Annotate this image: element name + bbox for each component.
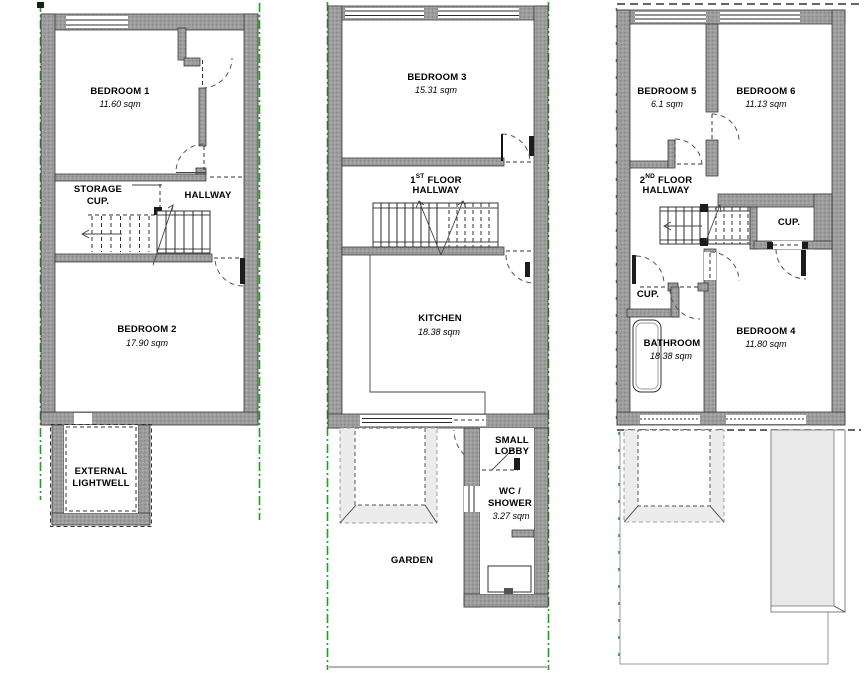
window [66, 16, 128, 28]
room-area-wc-shower: 3.27 sqm [492, 512, 529, 522]
plan-lower-ground [37, 2, 260, 527]
hall-ordinal-suffix: ND [645, 173, 655, 180]
room-label-second-floor-hallway-line2: HALLWAY [643, 186, 690, 196]
room-label-wc-shower-line2: SHOWER [488, 499, 532, 509]
below-floor-outline [617, 430, 861, 664]
room-label-small-lobby-line2: LOBBY [495, 447, 529, 457]
room-label-small-lobby-line1: SMALL [495, 436, 529, 446]
room-area-bedroom-5: 6.1 sqm [651, 100, 683, 110]
stairs [660, 204, 750, 246]
room-label-bedroom-2: BEDROOM 2 [117, 325, 176, 335]
room-label-storage-cup-line2: CUP. [87, 197, 109, 207]
room-label-storage-cup-line1: STORAGE [74, 185, 122, 195]
floor-plan-page: BEDROOM 1 11.60 sqm STORAGE CUP. HALLWAY… [0, 0, 864, 673]
room-area-bedroom-1: 11.60 sqm [99, 100, 140, 110]
room-label-wc-shower-line1: WC / [499, 487, 521, 497]
room-label-bathroom: BATHROOM [644, 339, 701, 349]
room-label-bedroom-5: BEDROOM 5 [637, 87, 696, 97]
room-label-bedroom-6: BEDROOM 6 [736, 87, 795, 97]
room-label-external-lightwell-line2: LIGHTWELL [72, 479, 129, 489]
room-area-bathroom: 18.38 sqm [650, 352, 692, 362]
room-label-kitchen: KITCHEN [418, 314, 462, 324]
room-area-kitchen: 18.38 sqm [418, 328, 460, 338]
room-label-hallway: HALLWAY [185, 191, 232, 201]
room-area-bedroom-2: 17.90 sqm [126, 339, 168, 349]
room-label-first-floor-hallway-line2: HALLWAY [413, 186, 460, 196]
room-area-bedroom-3: 15.31 sqm [415, 86, 457, 96]
room-label-bedroom-3: BEDROOM 3 [407, 73, 466, 83]
room-label-bedroom-1: BEDROOM 1 [90, 87, 149, 97]
room-label-garden: GARDEN [391, 556, 433, 566]
hall-ordinal-suffix: ST [416, 173, 425, 180]
room-label-cup-upper: CUP. [778, 218, 800, 228]
room-label-external-lightwell-line1: EXTERNAL [75, 467, 128, 477]
room-area-bedroom-4: 11.80 sqm [745, 340, 786, 350]
room-area-bedroom-6: 11.13 sqm [745, 100, 786, 110]
room-label-cup-lower: CUP. [637, 290, 659, 300]
stairs [373, 201, 498, 255]
room-label-bedroom-4: BEDROOM 4 [736, 327, 795, 337]
